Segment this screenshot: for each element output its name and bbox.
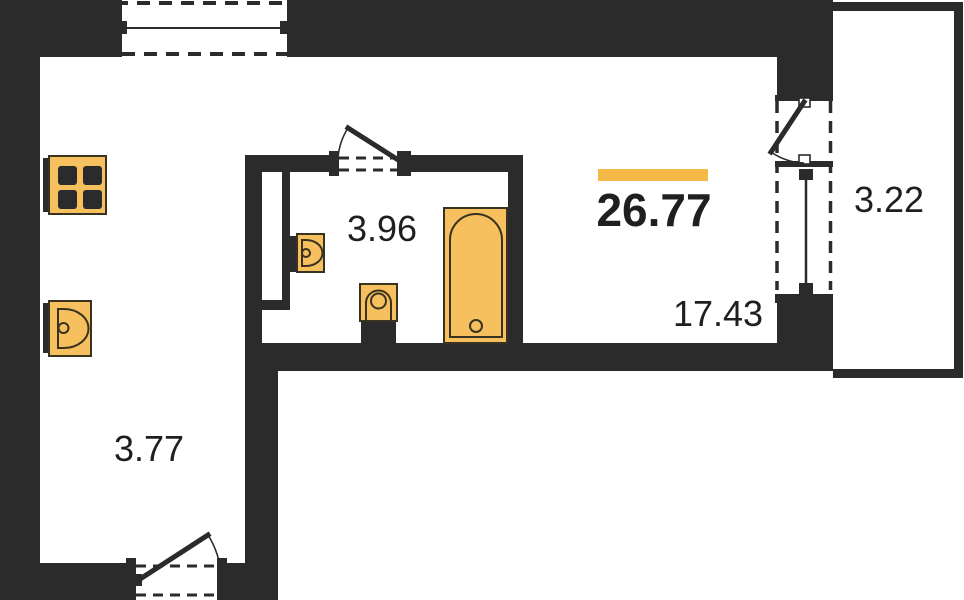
entry-door-icon bbox=[130, 535, 221, 595]
bathtub-icon bbox=[444, 208, 507, 343]
bathroom-wall-top-right bbox=[411, 155, 523, 172]
stove-icon bbox=[43, 156, 106, 214]
bathroom-wall-left bbox=[245, 155, 262, 343]
balcony-border-top bbox=[833, 2, 963, 11]
area-label-balcony: 3.22 bbox=[854, 179, 924, 220]
wall-top bbox=[296, 0, 833, 57]
area-label-hallway: 3.77 bbox=[114, 428, 184, 469]
duct-wall-cap bbox=[262, 300, 290, 310]
entry-door-leaf bbox=[137, 535, 208, 581]
total-area-label: 26.77 bbox=[596, 184, 711, 236]
top-window-icon bbox=[114, 3, 293, 54]
wall-south bbox=[245, 343, 833, 371]
wall-right-upper bbox=[777, 0, 833, 97]
wall-left bbox=[0, 0, 40, 600]
bathroom-door-jamb-left bbox=[329, 151, 339, 176]
floor-plan: 26.77 17.43 3.96 3.77 3.22 bbox=[0, 0, 964, 600]
wall-top-left-corner bbox=[0, 0, 115, 57]
window-end-post-right bbox=[280, 21, 293, 34]
balcony-opening bbox=[771, 95, 833, 303]
balcony-window-sill-bar bbox=[775, 294, 833, 303]
window-end-post-left bbox=[114, 21, 127, 34]
toilet-tank bbox=[361, 319, 396, 343]
duct-wall-strip bbox=[282, 172, 290, 310]
bathroom-door-icon bbox=[338, 128, 403, 170]
balcony-border-right bbox=[954, 2, 963, 378]
toilet-icon bbox=[360, 284, 397, 343]
area-label-living-room: 17.43 bbox=[673, 293, 763, 334]
wall-bottom-left bbox=[0, 563, 127, 600]
area-label-bathroom: 3.96 bbox=[347, 208, 417, 249]
kitchen-sink-icon bbox=[43, 301, 91, 356]
wall-bottom-right bbox=[227, 563, 278, 600]
balcony-window-icon bbox=[799, 169, 813, 294]
bathroom-sink-icon bbox=[289, 234, 324, 272]
bathroom-wall-top-left bbox=[245, 155, 332, 172]
bathroom-wall-right bbox=[508, 155, 523, 343]
balcony-border-bottom bbox=[833, 369, 963, 378]
bathroom-door-swing-arc bbox=[338, 128, 348, 158]
wall-hall-right bbox=[245, 343, 278, 600]
total-area-accent-bar bbox=[598, 169, 708, 181]
floor-plan-canvas: 26.77 17.43 3.96 3.77 3.22 bbox=[0, 0, 964, 600]
entry-door-jamb-right bbox=[217, 558, 227, 600]
